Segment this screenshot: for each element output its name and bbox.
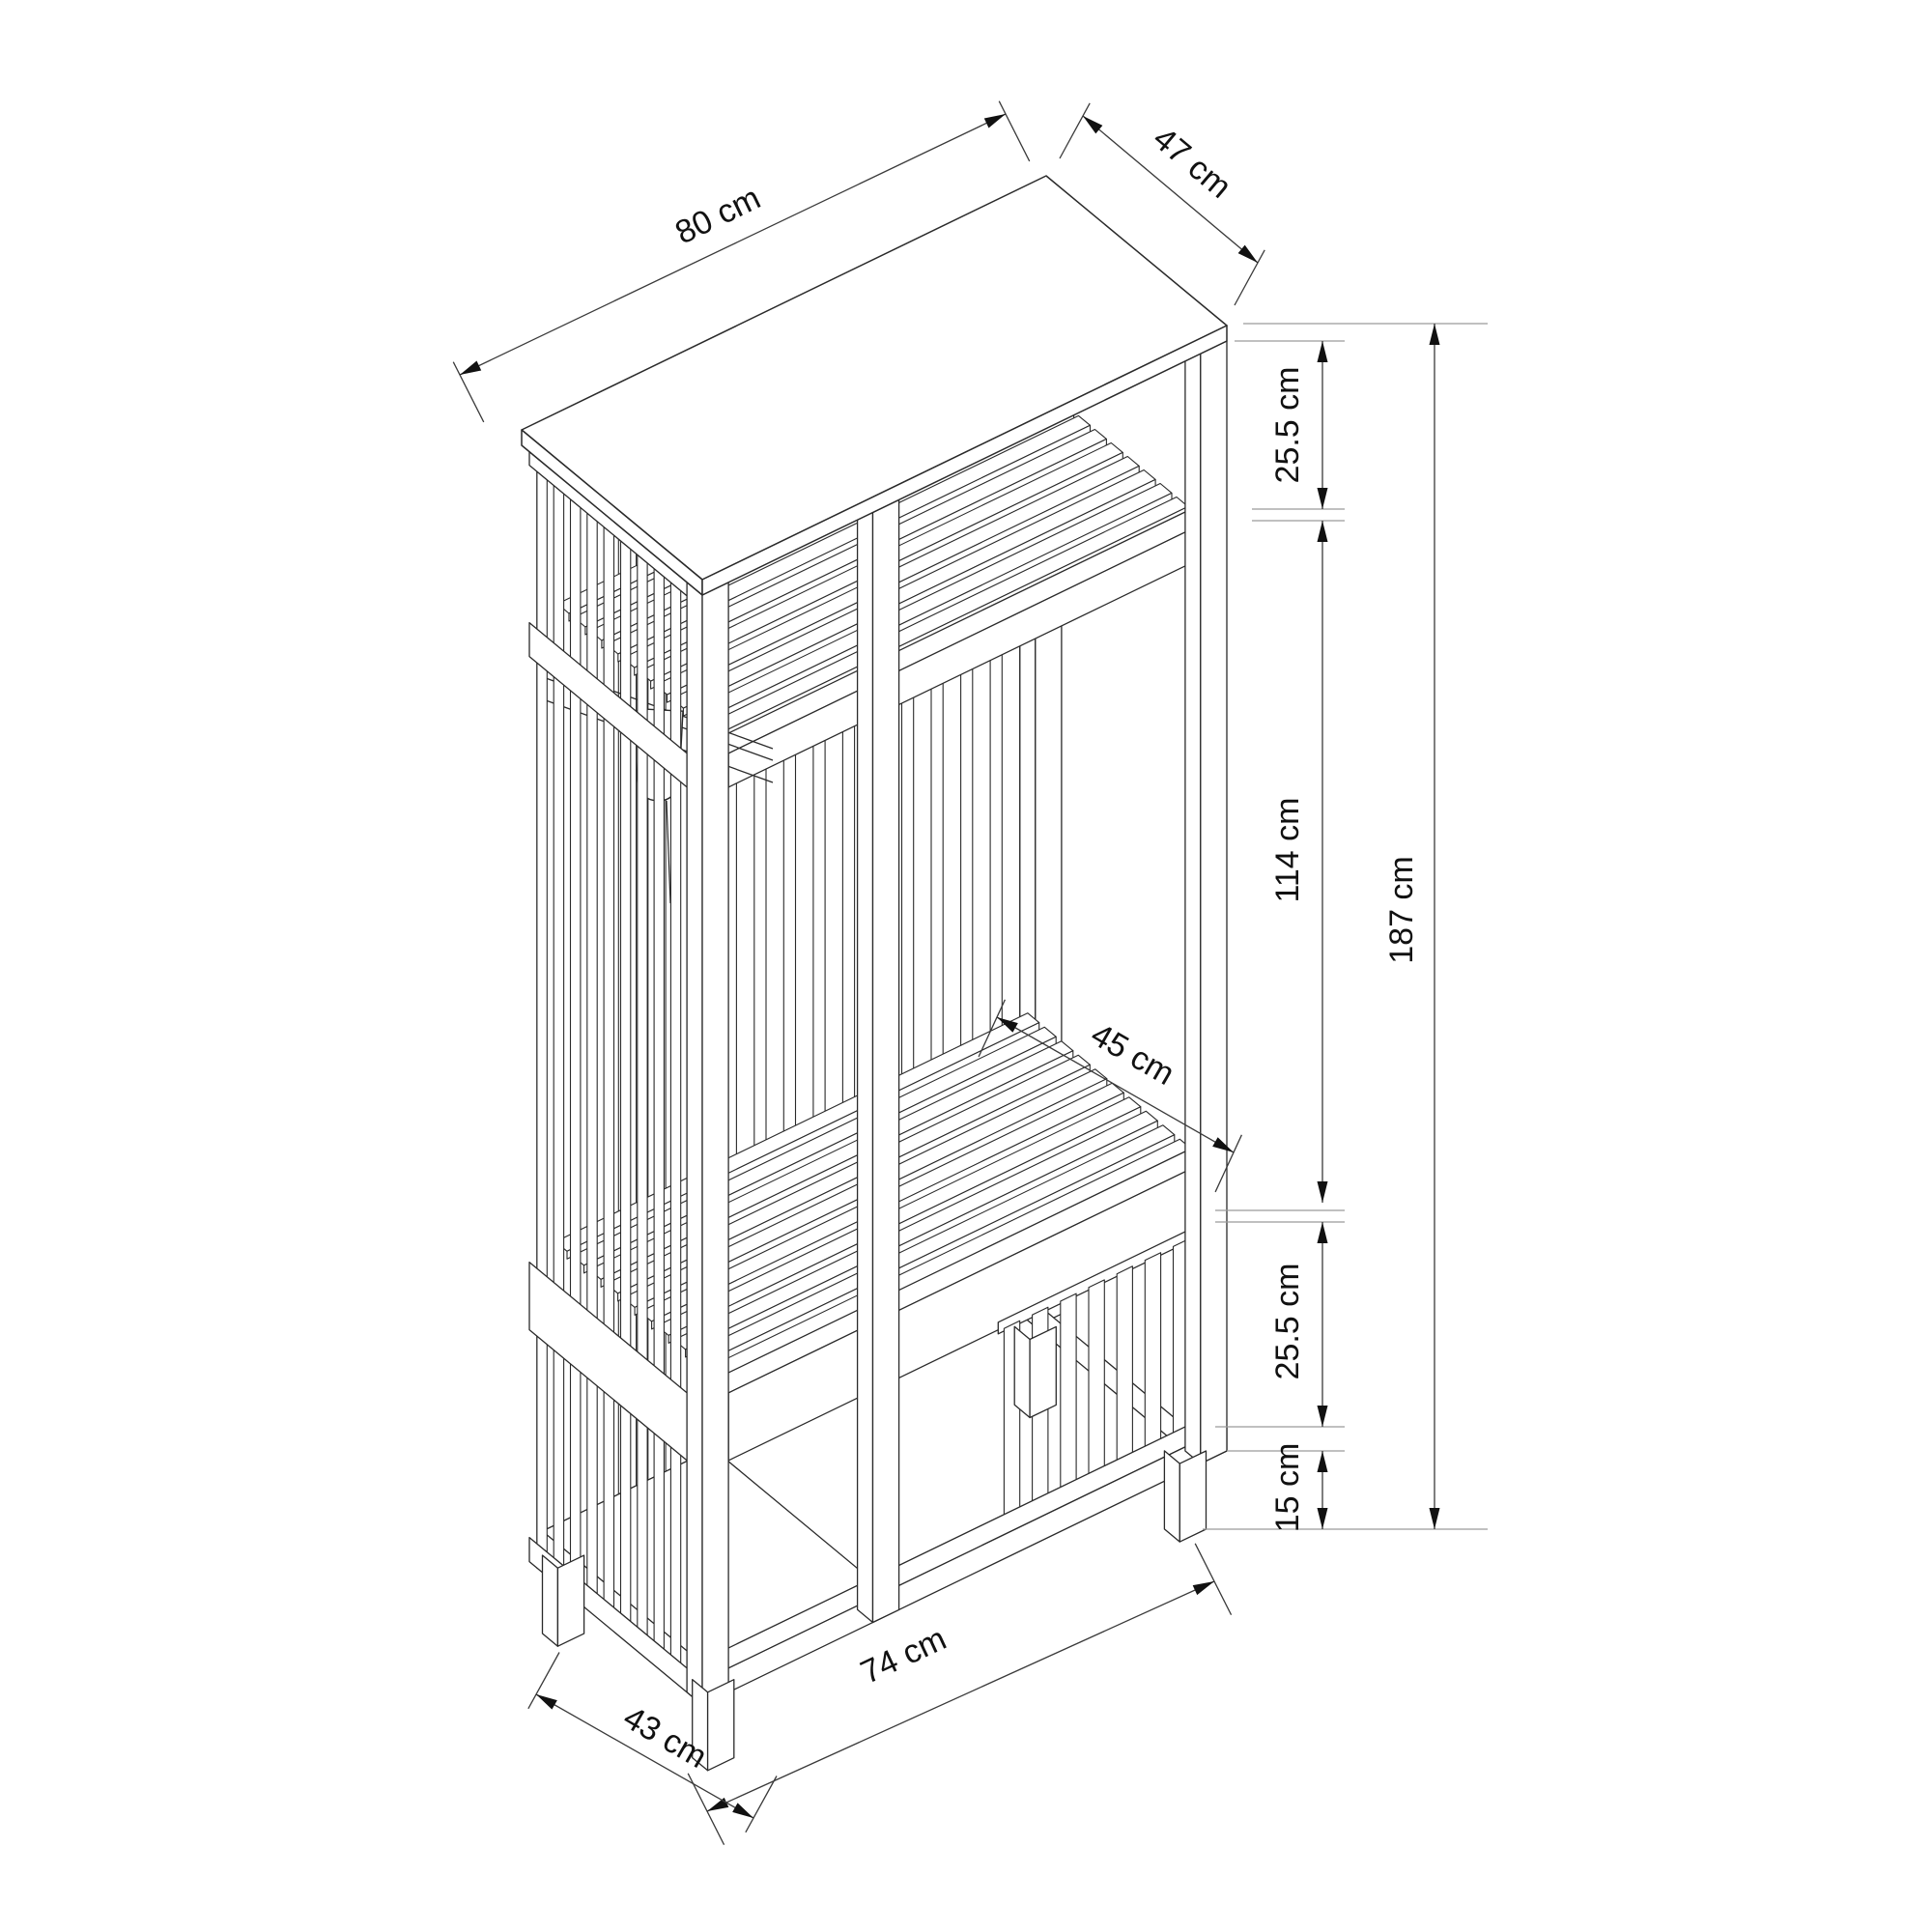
furniture-isometric-drawing: 80 cm 47 cm 25.5 cm 114 cm 187 cm 45 cm … xyxy=(0,0,1932,1932)
dim-label-lower-section-height: 25.5 cm xyxy=(1269,1264,1306,1380)
dim-label-upper-section-height: 25.5 cm xyxy=(1269,367,1306,484)
dim-label-leg-height: 15 cm xyxy=(1269,1443,1306,1533)
dim-label-total-height: 187 cm xyxy=(1383,856,1420,964)
dimension-drawing-page: 80 cm 47 cm 25.5 cm 114 cm 187 cm 45 cm … xyxy=(0,0,1932,1932)
dim-label-middle-section-height: 114 cm xyxy=(1269,798,1306,903)
